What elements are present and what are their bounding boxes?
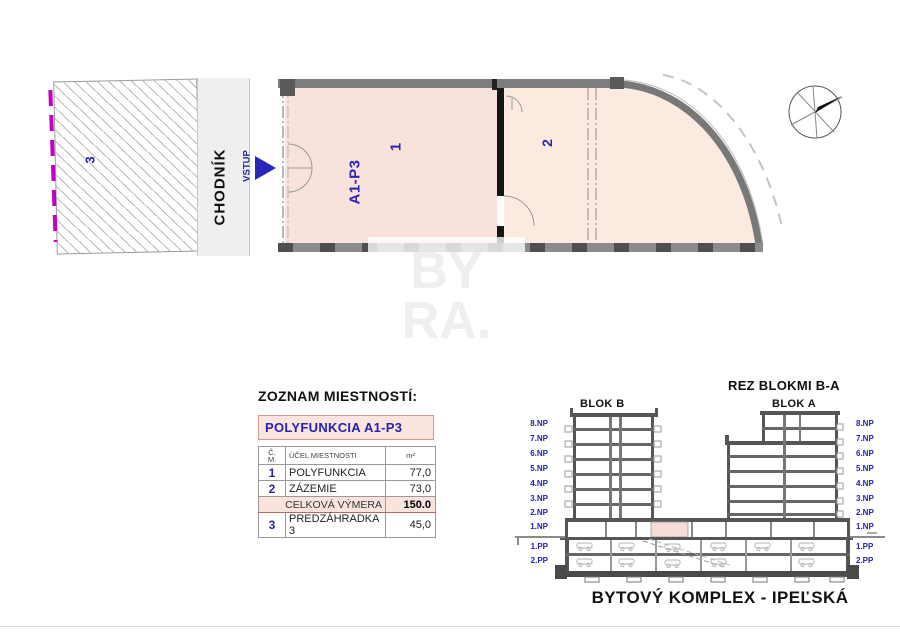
north-arrow-icon	[786, 84, 850, 146]
table-total-row: CELKOVÁ VÝMERA 150.0	[259, 497, 436, 513]
table-row: 1 POLYFUNKCIA 77,0	[259, 465, 436, 481]
floor-label-left: 7.NP	[518, 434, 548, 443]
floor-label-left: 3.NP	[518, 494, 548, 503]
row1-area: 77,0	[386, 465, 436, 481]
floor-label-left: 1.PP	[518, 542, 548, 551]
project-title: BYTOVÝ KOMPLEX - IPEĽSKÁ	[540, 588, 900, 608]
floor-label-right: 1.PP	[856, 542, 886, 551]
top-wall-right-column	[610, 77, 624, 89]
floor-label-left: 6.NP	[518, 449, 548, 458]
section-drawing	[515, 395, 885, 595]
plan-top-wall	[278, 79, 622, 88]
floor-label-left: 2.NP	[518, 508, 548, 517]
top-wall-left-column	[280, 79, 295, 96]
floor-label-left: 5.NP	[518, 464, 548, 473]
room2-number-label: 2	[539, 139, 555, 147]
entrance-door-arc-lower	[288, 168, 312, 192]
table-row: 2 ZÁZEMIE 73,0	[259, 481, 436, 497]
room3-number-label: 3	[83, 156, 98, 163]
unit-header-label: POLYFUNKCIA A1-P3	[265, 420, 402, 435]
col-header-purpose: ÚČEL MIESTNOSTI	[286, 447, 386, 465]
interior-door-arc	[504, 196, 534, 226]
row1-purpose: POLYFUNKCIA	[286, 465, 386, 481]
floor-label-right: 4.NP	[856, 479, 886, 488]
row1-num: 1	[259, 465, 286, 481]
table-header-row: Č. M. ÚČEL MIESTNOSTI m²	[259, 447, 436, 465]
total-value: 150.0	[386, 497, 436, 513]
architectural-drawing-page: 3 CHODNÍK VSTUP A1-P3 1 2	[0, 0, 900, 636]
watermark-line1: BY	[410, 246, 482, 296]
watermark-line2: RA.	[402, 296, 492, 346]
partition-top-arc	[506, 96, 522, 112]
row3-area: 45,0	[386, 513, 436, 538]
floor-label-left: 2.PP	[518, 556, 548, 565]
floor-label-left: 1.NP	[518, 522, 548, 531]
floor-label-right: 5.NP	[856, 464, 886, 473]
col-header-area: m²	[386, 447, 436, 465]
total-label: CELKOVÁ VÝMERA	[259, 497, 386, 513]
col-header-num: Č. M.	[259, 447, 286, 465]
front-garden-area-3	[53, 79, 201, 255]
floor-label-right: 6.NP	[856, 449, 886, 458]
floor-label-right: 3.NP	[856, 494, 886, 503]
unit-code-label: A1-P3	[347, 159, 364, 204]
table-row: 3 PREDZÁHRADKA 3 45,0	[259, 513, 436, 538]
row2-num: 2	[259, 481, 286, 497]
page-bottom-rule	[0, 626, 900, 627]
row3-purpose: PREDZÁHRADKA 3	[286, 513, 386, 538]
row2-purpose: ZÁZEMIE	[286, 481, 386, 497]
row3-num: 3	[259, 513, 286, 538]
sidewalk-label: CHODNÍK	[212, 149, 229, 226]
col-num-line2: M.	[268, 455, 276, 464]
room-list-table: Č. M. ÚČEL MIESTNOSTI m² 1 POLYFUNKCIA 7…	[258, 446, 436, 538]
section-title: REZ BLOKMI B-A	[728, 378, 840, 393]
row2-area: 73,0	[386, 481, 436, 497]
floor-label-right: 2.NP	[856, 508, 886, 517]
floor-label-left: 4.NP	[518, 479, 548, 488]
floor-label-right: 1.NP	[856, 522, 886, 531]
floor-label-right: 2.PP	[856, 556, 886, 565]
room-list-title: ZOZNAM MIESTNOSTÍ:	[258, 388, 417, 404]
floor-label-right: 7.NP	[856, 434, 886, 443]
floor-label-right: 8.NP	[856, 419, 886, 428]
partition-wall	[497, 88, 504, 243]
room1-number-label: 1	[388, 143, 405, 151]
floor-label-left: 8.NP	[518, 419, 548, 428]
unit-header-box: POLYFUNKCIA A1-P3	[258, 415, 434, 440]
watermark: BY RA.	[368, 237, 525, 355]
entrance-door-arc-upper	[288, 144, 312, 168]
